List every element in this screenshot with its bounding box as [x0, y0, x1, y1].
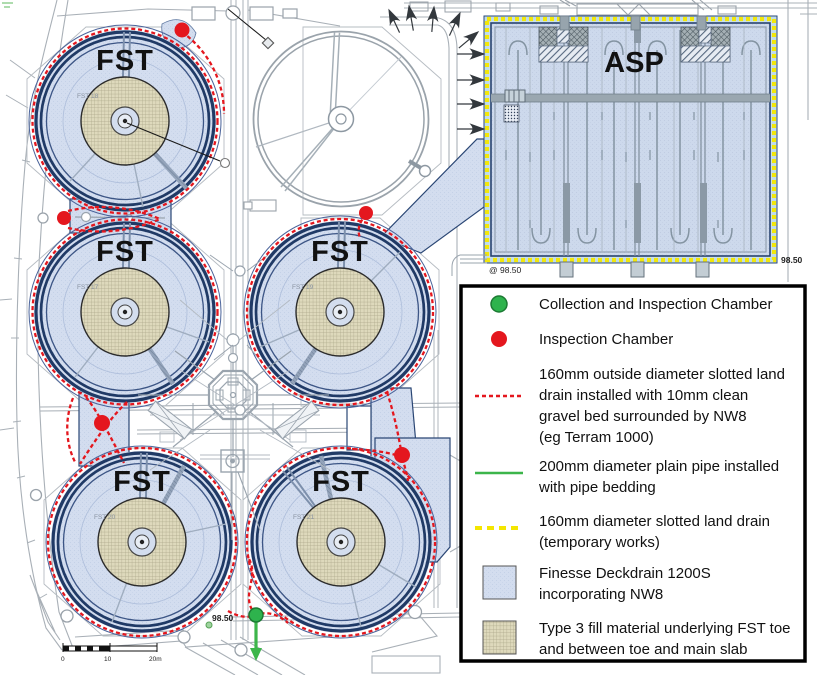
svg-text:@ 98.50: @ 98.50 [489, 265, 522, 275]
svg-text:FST: FST [312, 466, 370, 498]
svg-text:Type 3 fill material underlyin: Type 3 fill material underlying FST toe [539, 620, 791, 637]
svg-text:FST: FST [96, 45, 154, 77]
svg-text:10: 10 [104, 656, 112, 663]
svg-text:incorporating NW8: incorporating NW8 [539, 586, 663, 603]
svg-text:200mm diameter plain pipe inst: 200mm diameter plain pipe installed [539, 458, 779, 475]
svg-text:98.50: 98.50 [781, 255, 803, 265]
svg-text:drain installed with 10mm clea: drain installed with 10mm clean [539, 387, 748, 404]
svg-text:FST 17: FST 17 [77, 284, 99, 291]
svg-text:with pipe bedding: with pipe bedding [538, 479, 656, 496]
svg-text:FST 21: FST 21 [293, 514, 315, 521]
svg-text:ASP: ASP [604, 47, 664, 79]
svg-text:98.50: 98.50 [212, 613, 234, 623]
svg-text:FST: FST [96, 236, 154, 268]
svg-text:FST 19: FST 19 [292, 284, 314, 291]
svg-text:FST: FST [311, 236, 369, 268]
svg-text:0: 0 [61, 656, 65, 663]
svg-text:and between toe and main slab: and between toe and main slab [539, 641, 747, 658]
svg-text:FST: FST [113, 466, 171, 498]
svg-text:Collection and Inspection Cham: Collection and Inspection Chamber [539, 296, 772, 313]
svg-text:FST 20: FST 20 [94, 514, 116, 521]
svg-text:Inspection Chamber: Inspection Chamber [539, 331, 673, 348]
svg-text:gravel bed surrounded by NW8: gravel bed surrounded by NW8 [539, 408, 747, 425]
svg-text:(eg Terram 1000): (eg Terram 1000) [539, 429, 654, 446]
svg-text:160mm diameter slotted land dr: 160mm diameter slotted land drain [539, 513, 770, 530]
svg-text:(temporary works): (temporary works) [539, 534, 660, 551]
svg-text:20m: 20m [149, 656, 162, 663]
svg-text:FST 18: FST 18 [77, 93, 99, 100]
svg-text:160mm outside diameter slotted: 160mm outside diameter slotted land [539, 366, 785, 383]
svg-text:Finesse Deckdrain 1200S: Finesse Deckdrain 1200S [539, 565, 711, 582]
